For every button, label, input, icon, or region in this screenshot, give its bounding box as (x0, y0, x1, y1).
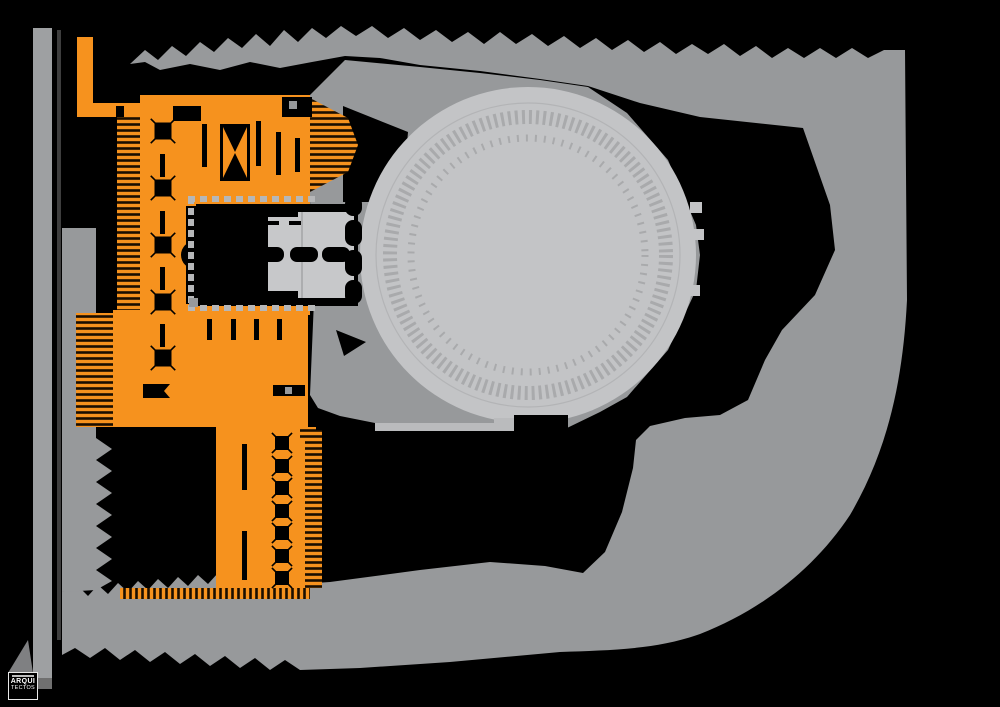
logo-line2: TECTOS (9, 686, 37, 692)
midbar-south-bar (122, 428, 212, 439)
spine-wall-slot-1 (160, 154, 165, 177)
site-plan-canvas (0, 0, 1000, 707)
topbar-north-notch (173, 106, 201, 121)
foyer-north-bar (268, 208, 298, 217)
road-west (33, 28, 52, 678)
topbar-wall-slot-4 (295, 138, 300, 172)
wing-wall-slot-1 (242, 444, 247, 490)
topbar-wall-slot-2 (256, 121, 261, 166)
foyer-dash-1 (266, 221, 279, 225)
spine-wall-slot-4 (160, 324, 165, 347)
wing-wall-slot-2 (242, 531, 247, 580)
south-stage-link (494, 418, 514, 425)
arena-gate-pod-1 (345, 196, 362, 216)
spine-wall-slot-2 (160, 211, 165, 234)
midbar-room-east-window (285, 387, 292, 394)
midbar-wall-slot-3 (254, 319, 259, 340)
arena-gate-pod-3 (345, 250, 362, 276)
south-stage-block (514, 415, 568, 437)
midbar-gray-corner (189, 298, 198, 307)
hatch-wing-south-fringe (120, 588, 310, 599)
architect-logo-stamp: ARQUI TECTOS (8, 672, 38, 700)
foyer-dash-2 (289, 221, 302, 225)
midbar-wall-slot-2 (231, 319, 236, 340)
foyer-south-bar (268, 291, 298, 300)
arena-east-nub-2 (692, 229, 704, 240)
midbar-wall-slot-4 (277, 319, 282, 340)
arena-gate-pod-4 (345, 280, 362, 304)
site-plan: ARQUI TECTOS (0, 0, 1000, 707)
road-divider (57, 30, 61, 640)
spine-wall-slot-3 (160, 267, 165, 290)
hatch-midbar-corner (300, 427, 316, 440)
hatch-wing-east (305, 430, 322, 588)
building-south-wing (216, 427, 308, 595)
logo-line1: ARQUI (9, 678, 37, 685)
arena-east-nub-1 (690, 202, 702, 213)
courtyard-west-apse (181, 241, 209, 269)
arena-gate-pod-2 (345, 220, 362, 246)
arena-east-nub-3 (688, 285, 700, 296)
building-nw-notch (116, 106, 124, 117)
logo-microtext-line (12, 675, 34, 677)
topbar-north-block-window (289, 101, 297, 109)
hatch-spine-west (117, 117, 140, 310)
corridor-capsule-1 (244, 247, 284, 262)
topbar-wall-slot-1 (202, 124, 207, 167)
building-nw-vertical-strip (77, 37, 93, 107)
hatch-terraces-west (76, 313, 113, 427)
midbar-wall-slot-1 (207, 319, 212, 340)
corridor-capsule-2 (290, 247, 318, 262)
topbar-wall-slot-3 (276, 132, 281, 175)
